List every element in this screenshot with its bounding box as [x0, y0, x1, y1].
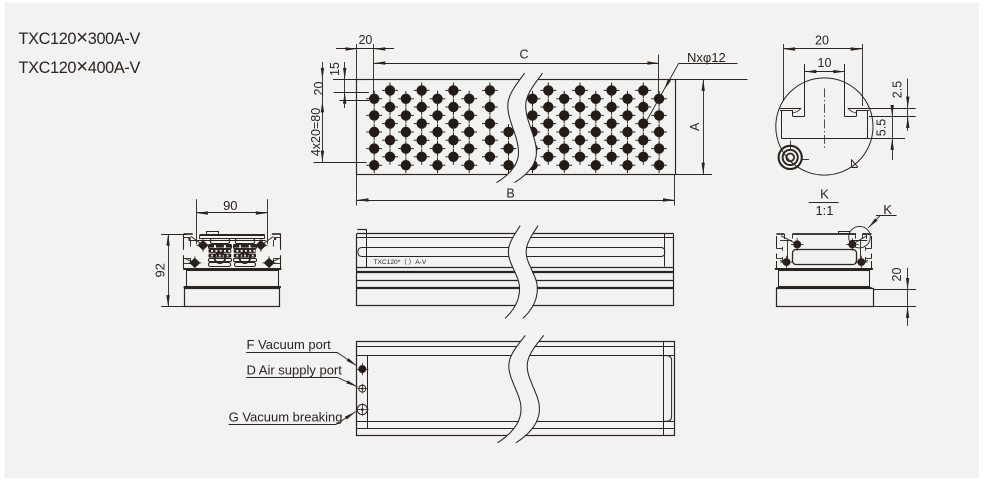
- svg-text:20: 20: [815, 33, 829, 47]
- svg-text:15: 15: [328, 62, 342, 76]
- svg-text:TXC120×300A-V: TXC120×300A-V: [19, 26, 141, 49]
- svg-text:TXC120×400A-V: TXC120×400A-V: [19, 55, 141, 78]
- svg-text:10: 10: [818, 56, 832, 70]
- svg-text:2.5: 2.5: [891, 81, 905, 98]
- svg-text:92: 92: [152, 263, 167, 277]
- svg-text:20: 20: [890, 268, 904, 282]
- svg-text:1:1: 1:1: [815, 203, 833, 218]
- svg-text:K: K: [820, 187, 829, 202]
- svg-text:C: C: [519, 48, 528, 62]
- svg-text:G Vacuum breaking: G Vacuum breaking: [229, 409, 343, 424]
- svg-text:K: K: [883, 202, 892, 217]
- svg-text:A: A: [688, 122, 702, 131]
- svg-text:D Air supply port: D Air supply port: [247, 362, 343, 377]
- svg-text:20: 20: [358, 33, 372, 47]
- svg-text:TXC120*（ ）A-V: TXC120*（ ）A-V: [374, 258, 427, 266]
- svg-text:B: B: [506, 187, 514, 201]
- svg-text:Nxφ12: Nxφ12: [687, 50, 726, 65]
- svg-text:90: 90: [223, 198, 237, 213]
- svg-text:4x20=80: 4x20=80: [309, 108, 323, 156]
- svg-text:5.5: 5.5: [875, 119, 889, 136]
- svg-text:20: 20: [312, 82, 326, 96]
- svg-text:F Vacuum port: F Vacuum port: [247, 337, 332, 352]
